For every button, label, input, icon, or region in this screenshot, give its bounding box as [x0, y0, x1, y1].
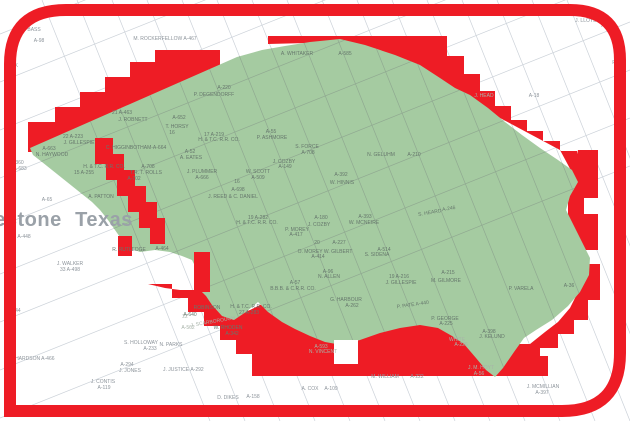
survey-label: A-342	[225, 331, 239, 337]
survey-label: A-585	[338, 51, 352, 57]
survey-label: J. COZBY	[308, 222, 331, 228]
survey-label: N. ALLEN	[318, 274, 340, 280]
survey-label: 20	[314, 240, 320, 246]
survey-label: A-109	[324, 386, 338, 392]
survey-label: A-149	[278, 164, 292, 170]
red-patch-mid-left	[194, 252, 210, 292]
survey-label: N. VINCENT	[309, 349, 337, 355]
survey-label: A. EATES	[180, 155, 203, 161]
survey-label: ROBINSON	[194, 305, 221, 311]
survey-label: A-509	[251, 175, 265, 181]
survey-label: 21 A-463	[112, 110, 132, 116]
survey-label: M. GILMORE	[431, 278, 462, 284]
survey-label: A-119	[98, 385, 111, 391]
survey-label: J. REED & C. DANIEL	[208, 194, 258, 200]
survey-label: A-292	[190, 367, 204, 373]
survey-label: A-18	[529, 93, 540, 99]
survey-label: R. RUTLEDGE	[112, 247, 146, 253]
survey-label: W. HINNIS	[330, 180, 355, 186]
survey-label: H. & T.C. R.R. CO.	[236, 220, 278, 226]
survey-label: 16	[169, 130, 175, 136]
survey-label: N. GELUHM	[367, 152, 395, 158]
survey-label: M. WILLIAM	[371, 374, 399, 380]
survey-label: A-215	[441, 270, 455, 276]
survey-label: H. & T.C. R.R. CO.	[198, 137, 240, 143]
survey-label: A-36	[564, 283, 575, 289]
survey-map[interactable]: estoneTexasA. BASSA-98M. ROCKERFELLOW A-…	[0, 0, 630, 421]
survey-label: A-562	[181, 325, 195, 331]
survey-label: B.B.B. & C.R.R. CO.	[270, 286, 316, 292]
survey-label: A-226	[454, 342, 468, 348]
survey-label: A-397	[535, 390, 549, 396]
survey-label: W. MCNEIRE	[349, 220, 380, 226]
survey-label: C. HIGGINBOTHAM-A-664	[106, 145, 167, 151]
survey-label: A-56	[474, 371, 485, 377]
survey-label: A-98	[34, 38, 45, 44]
survey-label: J. GILLESPIE	[64, 140, 96, 146]
survey-label: A-65	[42, 197, 53, 203]
survey-label: A-210	[407, 152, 421, 158]
survey-label: P. VARELA	[509, 286, 534, 292]
survey-label: P. ASHMORE	[257, 135, 288, 141]
survey-label: N. PARKS	[160, 342, 184, 348]
survey-label: A-666	[195, 175, 209, 181]
survey-label: A-640	[183, 312, 197, 318]
survey-label: A-652	[172, 115, 186, 121]
survey-label: M. ROCKERFELLOW A-467	[133, 36, 197, 42]
survey-label: A-448	[17, 234, 31, 240]
survey-label: A. COX	[302, 386, 320, 392]
survey-label: O. MOREY W. GILBERT	[298, 249, 353, 255]
survey-label: A-414	[311, 254, 325, 260]
survey-label: A-262	[345, 303, 359, 309]
survey-label: 16	[234, 179, 240, 185]
survey-label: A-698	[231, 187, 245, 193]
survey-label: A-222	[410, 374, 424, 380]
survey-label: A-227	[332, 240, 346, 246]
white-notch-bottom	[334, 340, 358, 364]
survey-label: 27 A-283	[239, 310, 259, 316]
survey-label: A-464	[155, 246, 169, 252]
survey-label: P. DEGENDORFF	[194, 92, 234, 98]
survey-label: A-220	[217, 85, 231, 91]
county-label: Texas	[75, 209, 133, 231]
survey-label: A. WHITAKER	[281, 51, 314, 57]
survey-label: A-225	[439, 321, 453, 327]
survey-label: A-708	[301, 150, 315, 156]
survey-label: A. PATTON	[88, 194, 114, 200]
survey-label: A-392	[334, 172, 348, 178]
survey-label: J. GILLESPIE	[386, 280, 418, 286]
survey-label: J. KELUND	[479, 334, 505, 340]
survey-label: CHARDSON A-466	[11, 356, 54, 362]
survey-label: 15 A-255	[74, 170, 94, 176]
survey-label: S. SIDENA	[365, 252, 390, 258]
survey-label: N. HAYWOOD	[36, 152, 69, 158]
survey-label: A-417	[289, 232, 303, 238]
map-viewport[interactable]: estoneTexasA. BASSA-98M. ROCKERFELLOW A-…	[0, 0, 630, 421]
survey-label: J. ROBNETT	[118, 117, 147, 123]
survey-label: A-233	[143, 346, 157, 352]
survey-label: J. JUSTICE	[163, 367, 190, 373]
survey-label: 33 A-498	[60, 267, 80, 273]
survey-label: A-158	[246, 394, 260, 400]
survey-label: D. DIKES	[217, 395, 239, 401]
survey-label: A-702	[127, 176, 141, 182]
survey-label: J. HEAD	[474, 93, 494, 99]
survey-label: J. JONES	[119, 368, 142, 374]
red-patch-left	[118, 236, 132, 256]
survey-label: A-180	[314, 215, 328, 221]
